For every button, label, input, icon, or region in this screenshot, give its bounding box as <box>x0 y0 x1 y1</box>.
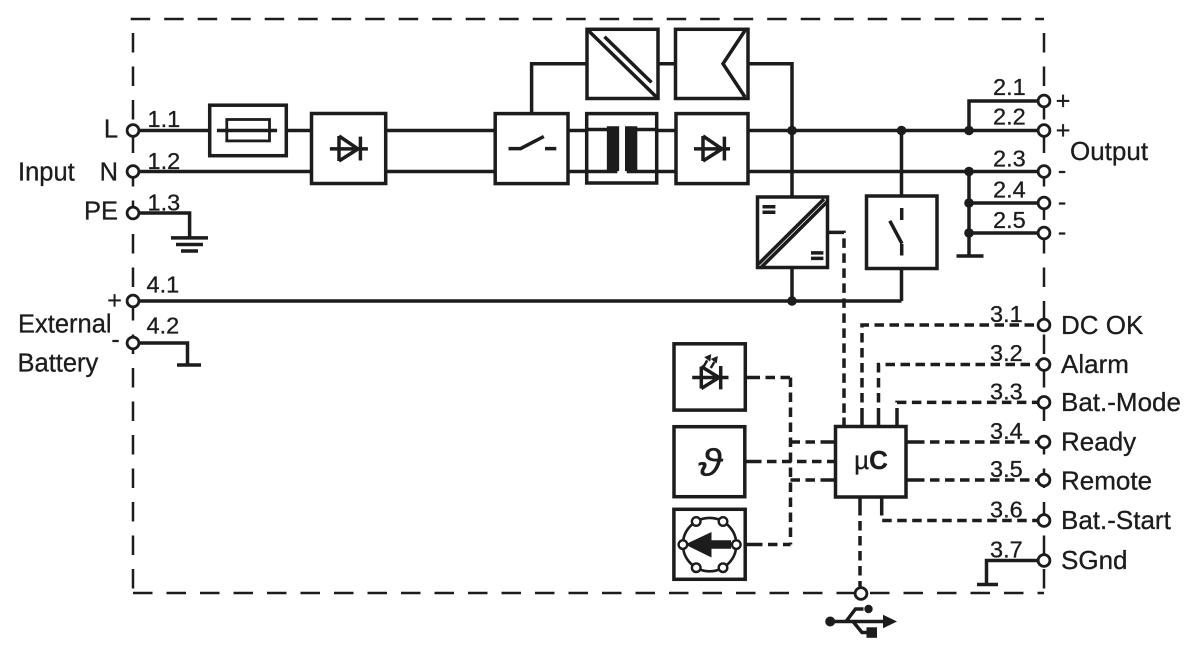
svg-text:3.1: 3.1 <box>990 301 1023 327</box>
svg-text:Bat.-Start: Bat.-Start <box>1061 505 1172 535</box>
svg-text:2.4: 2.4 <box>993 177 1026 203</box>
svg-text:Bat.-Mode: Bat.-Mode <box>1061 387 1181 417</box>
svg-text:Ready: Ready <box>1061 427 1136 457</box>
svg-text:µC: µC <box>854 445 888 475</box>
svg-text:Output: Output <box>1070 136 1149 166</box>
svg-text:External: External <box>18 311 112 339</box>
svg-text:4.2: 4.2 <box>147 313 180 339</box>
svg-text:-: - <box>1058 188 1066 216</box>
svg-text:+: + <box>107 287 122 315</box>
svg-text:2.5: 2.5 <box>993 207 1026 233</box>
svg-text:3.7: 3.7 <box>990 537 1023 563</box>
svg-text:3.4: 3.4 <box>990 418 1023 444</box>
svg-text:-: - <box>111 326 119 354</box>
svg-text:3.3: 3.3 <box>990 378 1023 404</box>
svg-text:1.3: 1.3 <box>148 190 181 216</box>
svg-text:SGnd: SGnd <box>1061 545 1128 575</box>
svg-text:Remote: Remote <box>1061 466 1152 496</box>
svg-text:2.1: 2.1 <box>993 74 1026 100</box>
svg-text:L: L <box>104 116 118 144</box>
svg-text:DC OK: DC OK <box>1061 310 1144 340</box>
svg-text:-: - <box>1058 157 1066 185</box>
svg-text:Battery: Battery <box>18 350 99 378</box>
svg-text:1.2: 1.2 <box>148 148 181 174</box>
svg-text:Alarm: Alarm <box>1061 349 1129 379</box>
svg-text:Input: Input <box>18 159 75 187</box>
svg-text:PE: PE <box>84 198 118 226</box>
svg-text:+: + <box>1056 117 1071 145</box>
svg-text:ϑ: ϑ <box>698 441 724 483</box>
svg-text:2.3: 2.3 <box>993 146 1026 172</box>
svg-text:3.6: 3.6 <box>990 496 1023 522</box>
svg-text:N: N <box>100 159 118 187</box>
svg-text:+: + <box>1056 87 1071 115</box>
svg-text:3.5: 3.5 <box>990 456 1023 482</box>
svg-text:-: - <box>1058 218 1066 246</box>
svg-text:3.2: 3.2 <box>990 340 1023 366</box>
svg-text:2.2: 2.2 <box>993 104 1026 130</box>
svg-text:4.1: 4.1 <box>147 272 180 298</box>
svg-text:1.1: 1.1 <box>148 106 181 132</box>
